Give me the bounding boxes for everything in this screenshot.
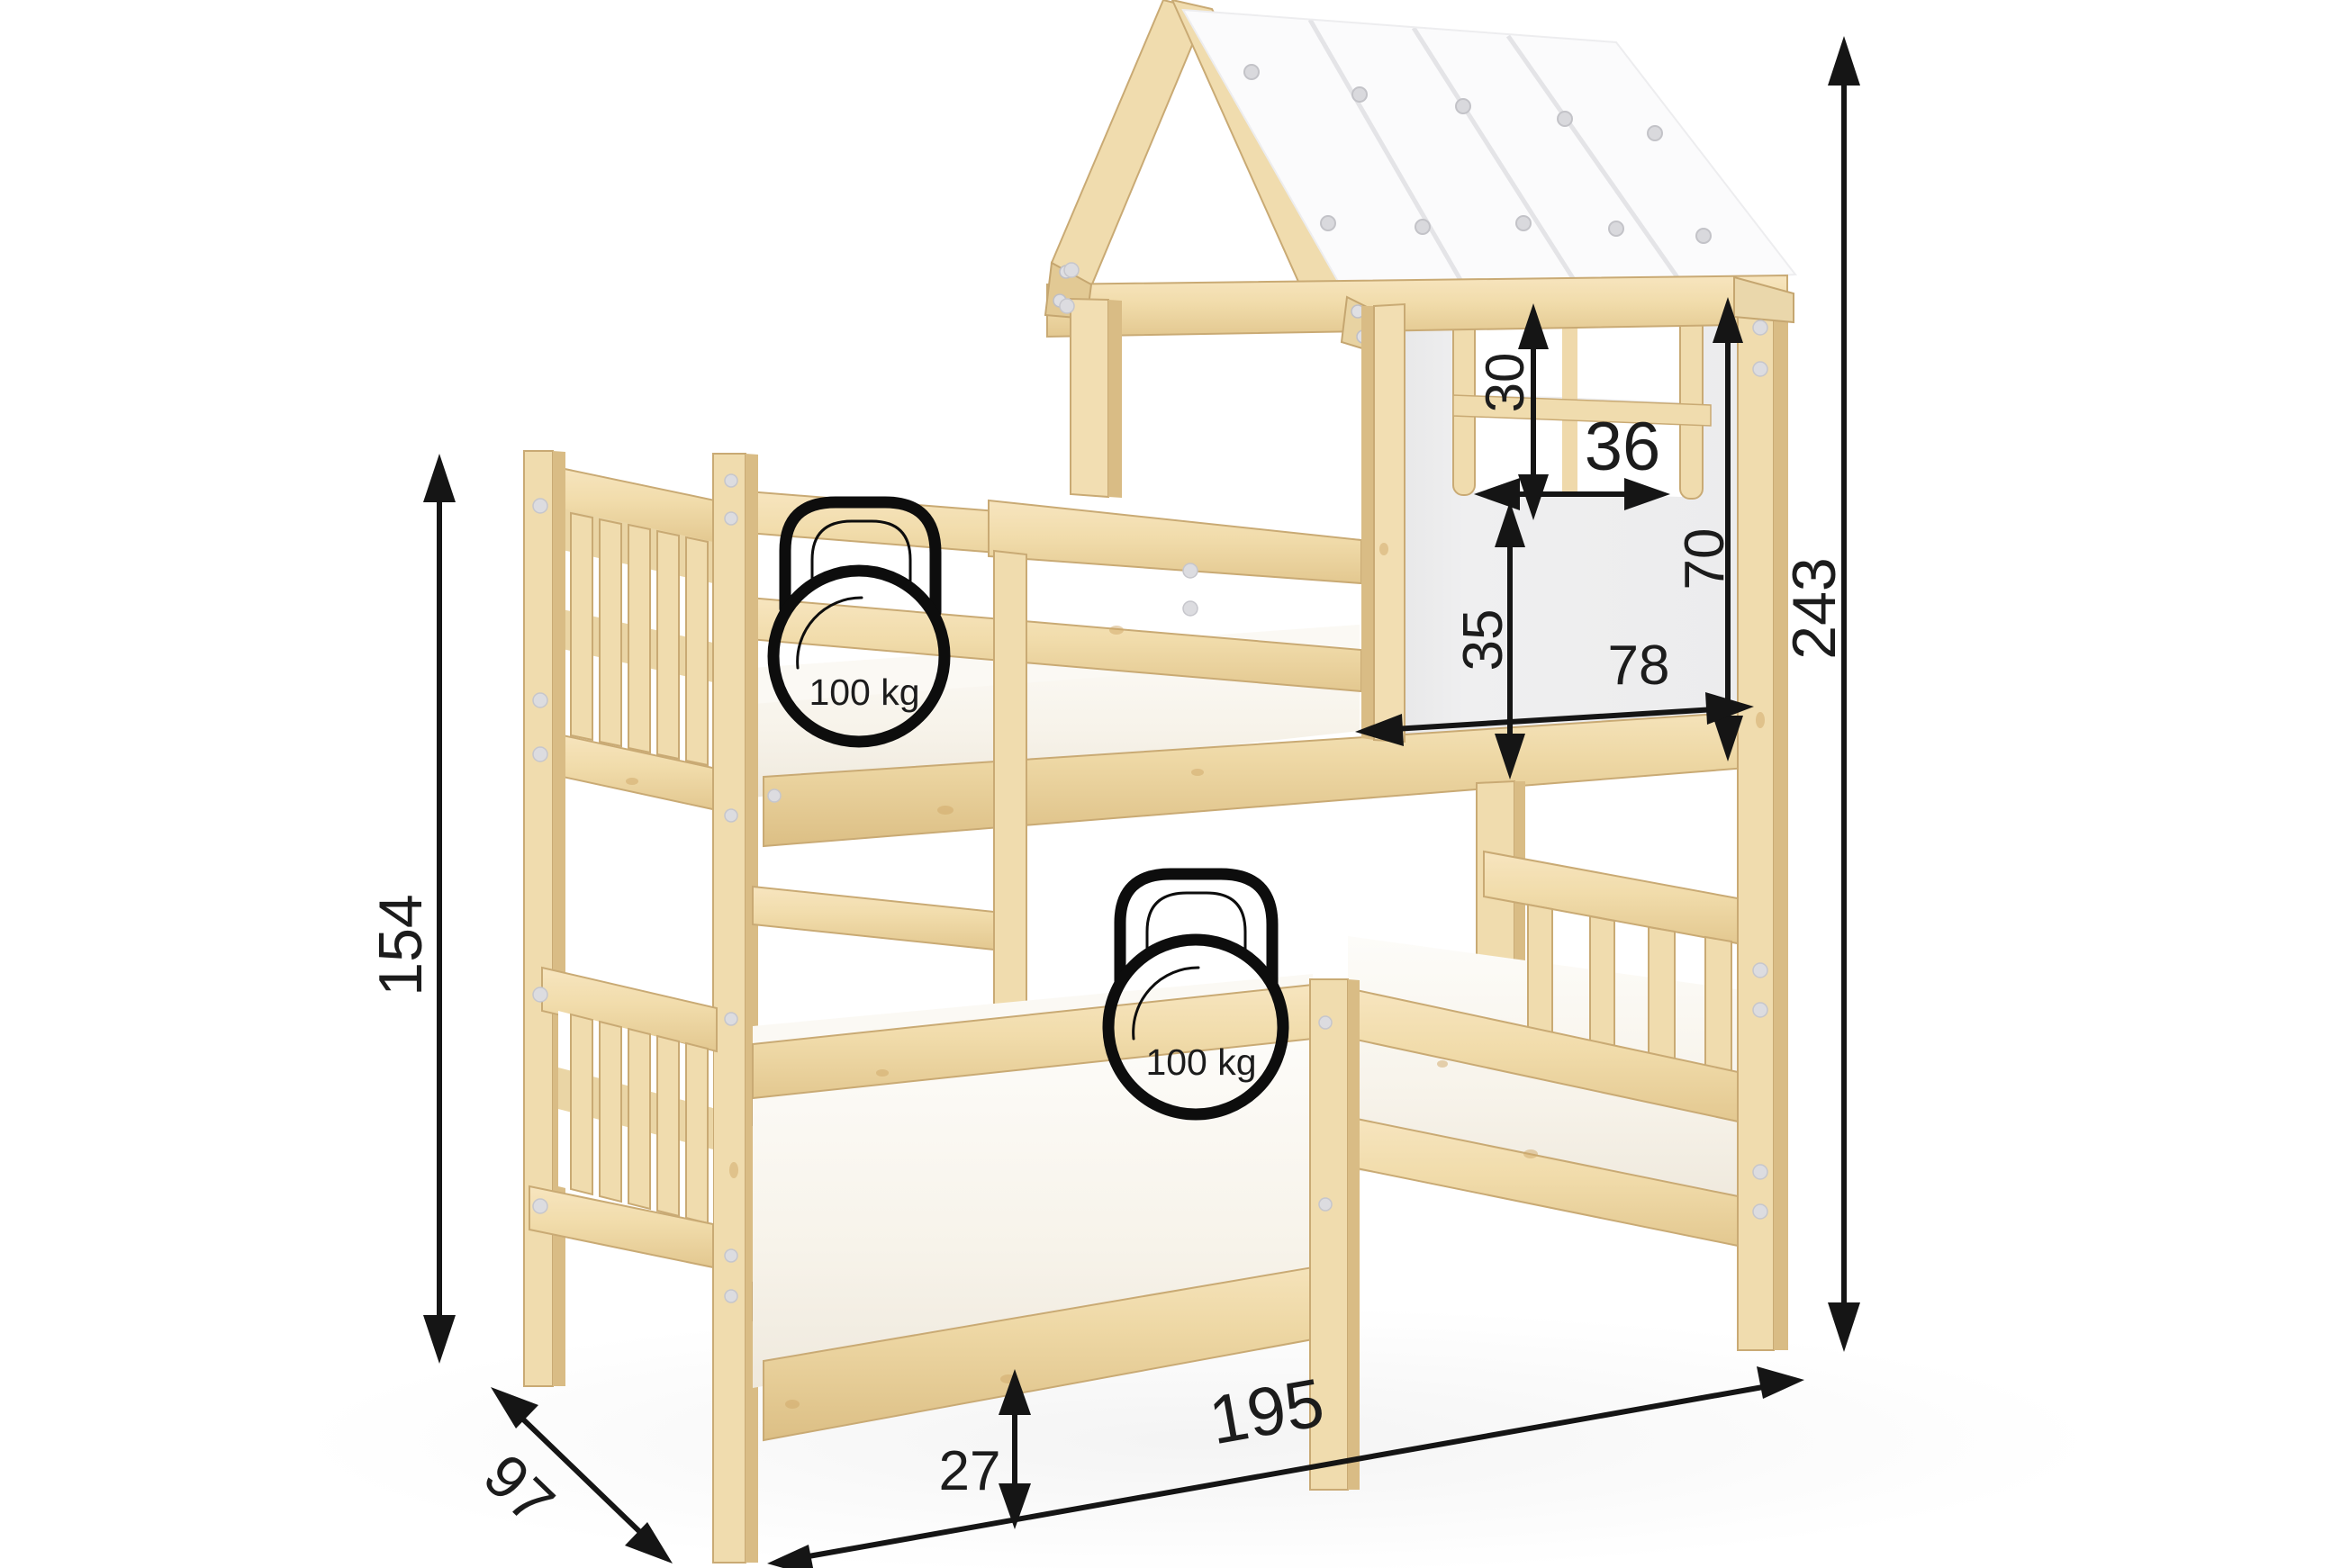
svg-text:100 kg: 100 kg — [809, 671, 919, 713]
svg-text:243: 243 — [1780, 557, 1848, 659]
svg-text:35: 35 — [1452, 609, 1514, 671]
svg-text:70: 70 — [1674, 528, 1736, 590]
svg-text:30: 30 — [1475, 353, 1535, 413]
svg-text:100 kg: 100 kg — [1145, 1041, 1256, 1083]
svg-text:154: 154 — [366, 894, 435, 996]
svg-text:36: 36 — [1585, 409, 1661, 485]
svg-text:78: 78 — [1608, 635, 1670, 697]
svg-text:27: 27 — [939, 1440, 1001, 1502]
